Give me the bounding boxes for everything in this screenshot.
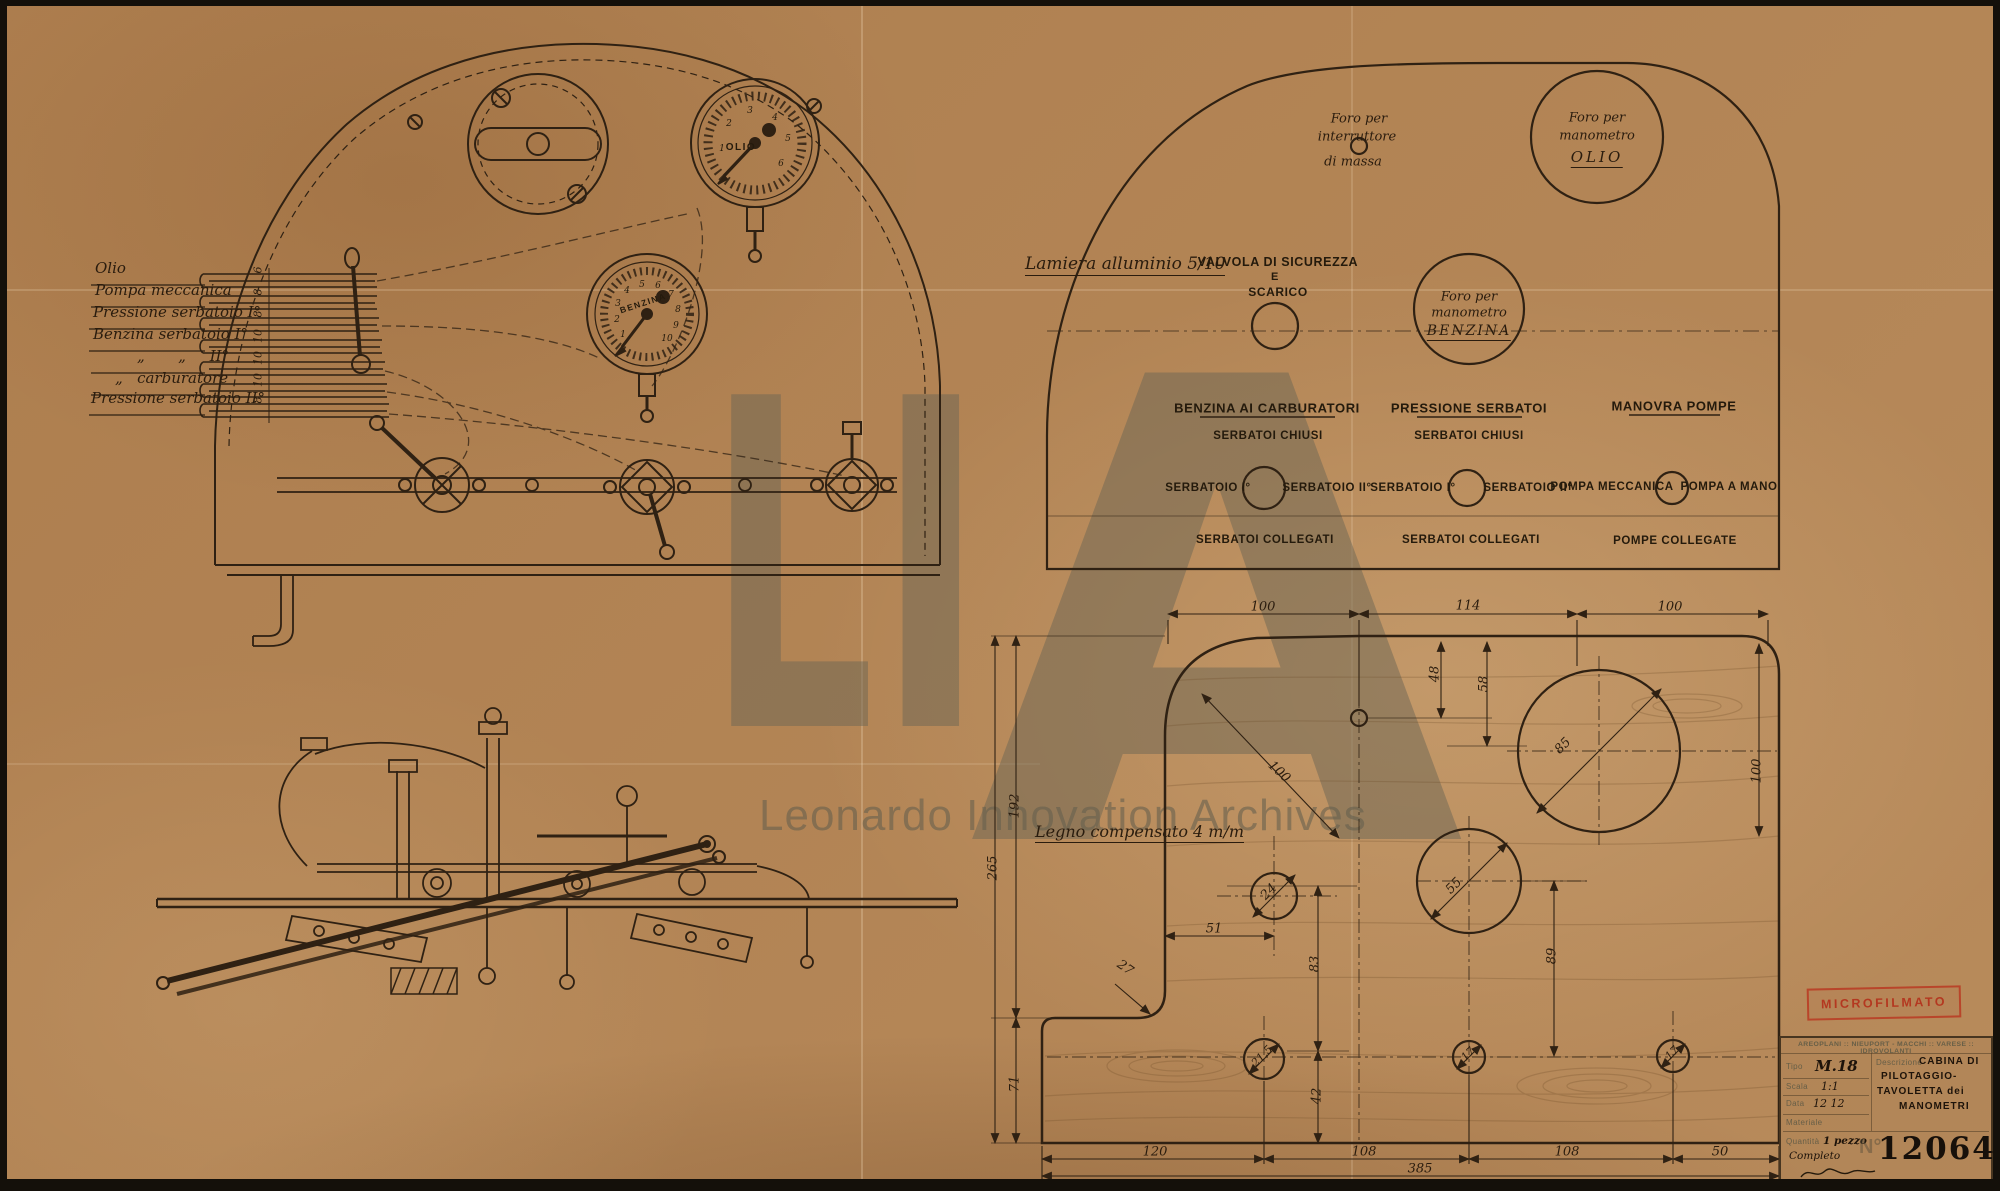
fuel-cock-lever — [345, 248, 370, 373]
col2-bottom: SERBATOI COLLEGATI — [1402, 534, 1540, 546]
numero-value: 12064 — [1878, 1131, 1993, 1167]
dim-right-100: 100 — [1750, 759, 1765, 784]
olio-gauge-label: OLIO — [726, 142, 756, 153]
dim-bottom-4: 50 — [1712, 1145, 1729, 1160]
routing-lines — [377, 208, 845, 476]
benzina-hole-line1: Foro per — [1441, 290, 1498, 305]
benzina-tick-8: 8 — [675, 305, 681, 315]
pipe-label-olio: Olio — [95, 259, 126, 277]
benzina-hole-line3: BENZINA — [1427, 323, 1511, 341]
olio-tick-6: 6 — [778, 159, 784, 169]
dim-83: 83 — [1308, 956, 1323, 973]
tipo-value: M.18 — [1815, 1057, 1858, 1075]
face-view-drawing — [1007, 46, 1807, 586]
interruttore-note-line3: di massa — [1324, 155, 1382, 170]
knurled-grip — [391, 968, 457, 994]
benzina-tick-10: 10 — [661, 334, 673, 344]
olio-tick-3: 3 — [747, 106, 753, 116]
valve-1 — [370, 416, 485, 512]
dim-89: 89 — [1545, 948, 1560, 965]
benzina-tick-4: 4 — [623, 286, 630, 296]
dimension-drawing — [987, 586, 1807, 1179]
pipe-label-carburatore: „ carburatore — [115, 369, 228, 387]
dim-bottom-2: 108 — [1352, 1145, 1377, 1160]
title-block: AREOPLANI :: NIEUPORT - MACCHI :: VARESE… — [1779, 1036, 1993, 1179]
benzina-hole-line2: manometro — [1431, 306, 1507, 321]
descrizione-line3: TAVOLETTA dei — [1877, 1086, 1965, 1097]
support-feet — [479, 907, 813, 989]
interruttore-note-line1: Foro per — [1331, 112, 1388, 127]
data-label: Data — [1786, 1099, 1805, 1108]
valve-3 — [811, 422, 893, 511]
dim-58: 58 — [1477, 676, 1492, 693]
manifold-pipe — [277, 478, 897, 492]
benzina-tick-7: 7 — [668, 290, 674, 300]
col3-title: MANOVRA POMPE — [1611, 399, 1736, 414]
descrizione-line4: MANOMETRI — [1899, 1101, 1970, 1112]
pipe-size-3: 8 — [252, 311, 265, 318]
benzina-gauge — [587, 254, 707, 422]
descrizione-line2: PILOTAGGIO- — [1881, 1071, 1957, 1082]
pipe-size-4: 10 — [252, 329, 265, 343]
pipe-size-1: 6 — [252, 267, 265, 274]
benzina-tick-1: 1 — [620, 330, 626, 340]
plywood-note: Legno compensato 4 m/m — [1035, 822, 1244, 843]
magneto-switch — [468, 74, 608, 214]
olio-hole-line3: OLIO — [1571, 148, 1623, 168]
front-panel-outline — [215, 44, 940, 565]
olio-tick-5: 5 — [785, 134, 791, 144]
dim-bottom-3: 108 — [1555, 1145, 1580, 1160]
col1-title: BENZINA AI CARBURATORI — [1174, 401, 1360, 416]
descrizione-label: Descrizione — [1876, 1058, 1922, 1067]
valve-assembly — [279, 708, 809, 899]
col3-left: POMPA MECCANICA — [1550, 481, 1673, 493]
quantita-label: Quantità — [1786, 1137, 1819, 1146]
benzina-tick-6: 6 — [655, 281, 661, 291]
material-note: Lamiera alluminio 5/10 — [1025, 254, 1225, 276]
hole-valvola — [1252, 303, 1298, 349]
pipe-label-pompa-meccanica: Pompa meccanica — [95, 281, 232, 299]
col3-bottom: POMPE COLLEGATE — [1613, 535, 1737, 547]
pipe-label-benzina-serbatoio-1: Benzina serbatoio I° — [93, 325, 248, 343]
col2-title: PRESSIONE SERBATOI — [1391, 401, 1547, 416]
col3-right: POMPA A MANO — [1680, 481, 1777, 493]
olio-hole-line2: manometro — [1559, 129, 1635, 144]
col1-left: SERBATOIO I° — [1165, 482, 1251, 494]
pipe-size-6: 10 — [252, 373, 265, 387]
data-value: 12 12 — [1813, 1097, 1845, 1110]
col1-bottom: SERBATOI COLLEGATI — [1196, 534, 1334, 546]
dim-bottom-total: 385 — [1408, 1162, 1433, 1177]
pipe-size-2: 8 — [252, 289, 265, 296]
valvola-line2: E — [1271, 271, 1279, 283]
pipe-label-benzina-serbatoio-2: „ „ II° — [137, 347, 229, 365]
pipe-label-pressione-serbatoio-1: Pressione serbatoio I° — [93, 303, 261, 321]
col2-top: SERBATOI CHIUSI — [1414, 430, 1524, 442]
olio-tick-4: 4 — [771, 113, 778, 123]
dim-left-upper: 192 — [1008, 794, 1023, 819]
dim-top-3: 100 — [1658, 600, 1683, 615]
microfilmato-stamp: MICROFILMATO — [1807, 985, 1962, 1020]
side-view-drawing — [107, 676, 1007, 1026]
valve-2 — [604, 460, 690, 559]
col2-left: SERBATOIO I° — [1370, 482, 1456, 494]
valvola-line3: SCARICO — [1248, 285, 1308, 299]
dim-bottom-1: 120 — [1143, 1145, 1168, 1160]
pipe-label-pressione-serbatoio-2: Pressione serbatoio II° — [91, 389, 265, 407]
olio-tick-2: 2 — [725, 119, 732, 129]
olio-hole-line1: Foro per — [1569, 111, 1626, 126]
dim-left-outer: 265 — [986, 856, 1001, 881]
col1-right: SERBATOIO II° — [1282, 482, 1371, 494]
descrizione-line1: CABINA DI — [1919, 1056, 1979, 1067]
pipe-size-5: 10 — [252, 351, 265, 365]
col1-top: SERBATOI CHIUSI — [1213, 430, 1323, 442]
scala-value: 1:1 — [1821, 1080, 1839, 1093]
dim-top-2: 114 — [1456, 599, 1481, 614]
valvola-line1: VALVOLA DI SICUREZZA — [1198, 255, 1358, 269]
benzina-tick-9: 9 — [673, 321, 679, 331]
dim-51: 51 — [1206, 922, 1223, 937]
perforated-bracket-right — [631, 914, 752, 962]
benzina-tick-5: 5 — [639, 280, 645, 290]
dim-48: 48 — [1428, 666, 1443, 683]
dim-42: 42 — [1310, 1088, 1325, 1105]
materiale-label: Materiale — [1786, 1118, 1823, 1127]
dim-top-1: 100 — [1251, 600, 1276, 615]
pipe-size-7: 8 — [252, 397, 265, 404]
interruttore-note-line2: interruttore — [1318, 130, 1396, 145]
tipo-label: Tipo — [1786, 1062, 1803, 1071]
benzina-tick-2: 2 — [613, 315, 620, 325]
signature-scribble — [1799, 1164, 1879, 1179]
dim-left-lower: 71 — [1008, 1076, 1023, 1093]
olio-tick-1: 1 — [719, 144, 725, 154]
quantita-value-2: Completo — [1789, 1150, 1840, 1162]
blueprint-sheet: L I A Leonardo Innovation Archives — [7, 6, 1993, 1179]
scala-label: Scala — [1786, 1082, 1808, 1091]
